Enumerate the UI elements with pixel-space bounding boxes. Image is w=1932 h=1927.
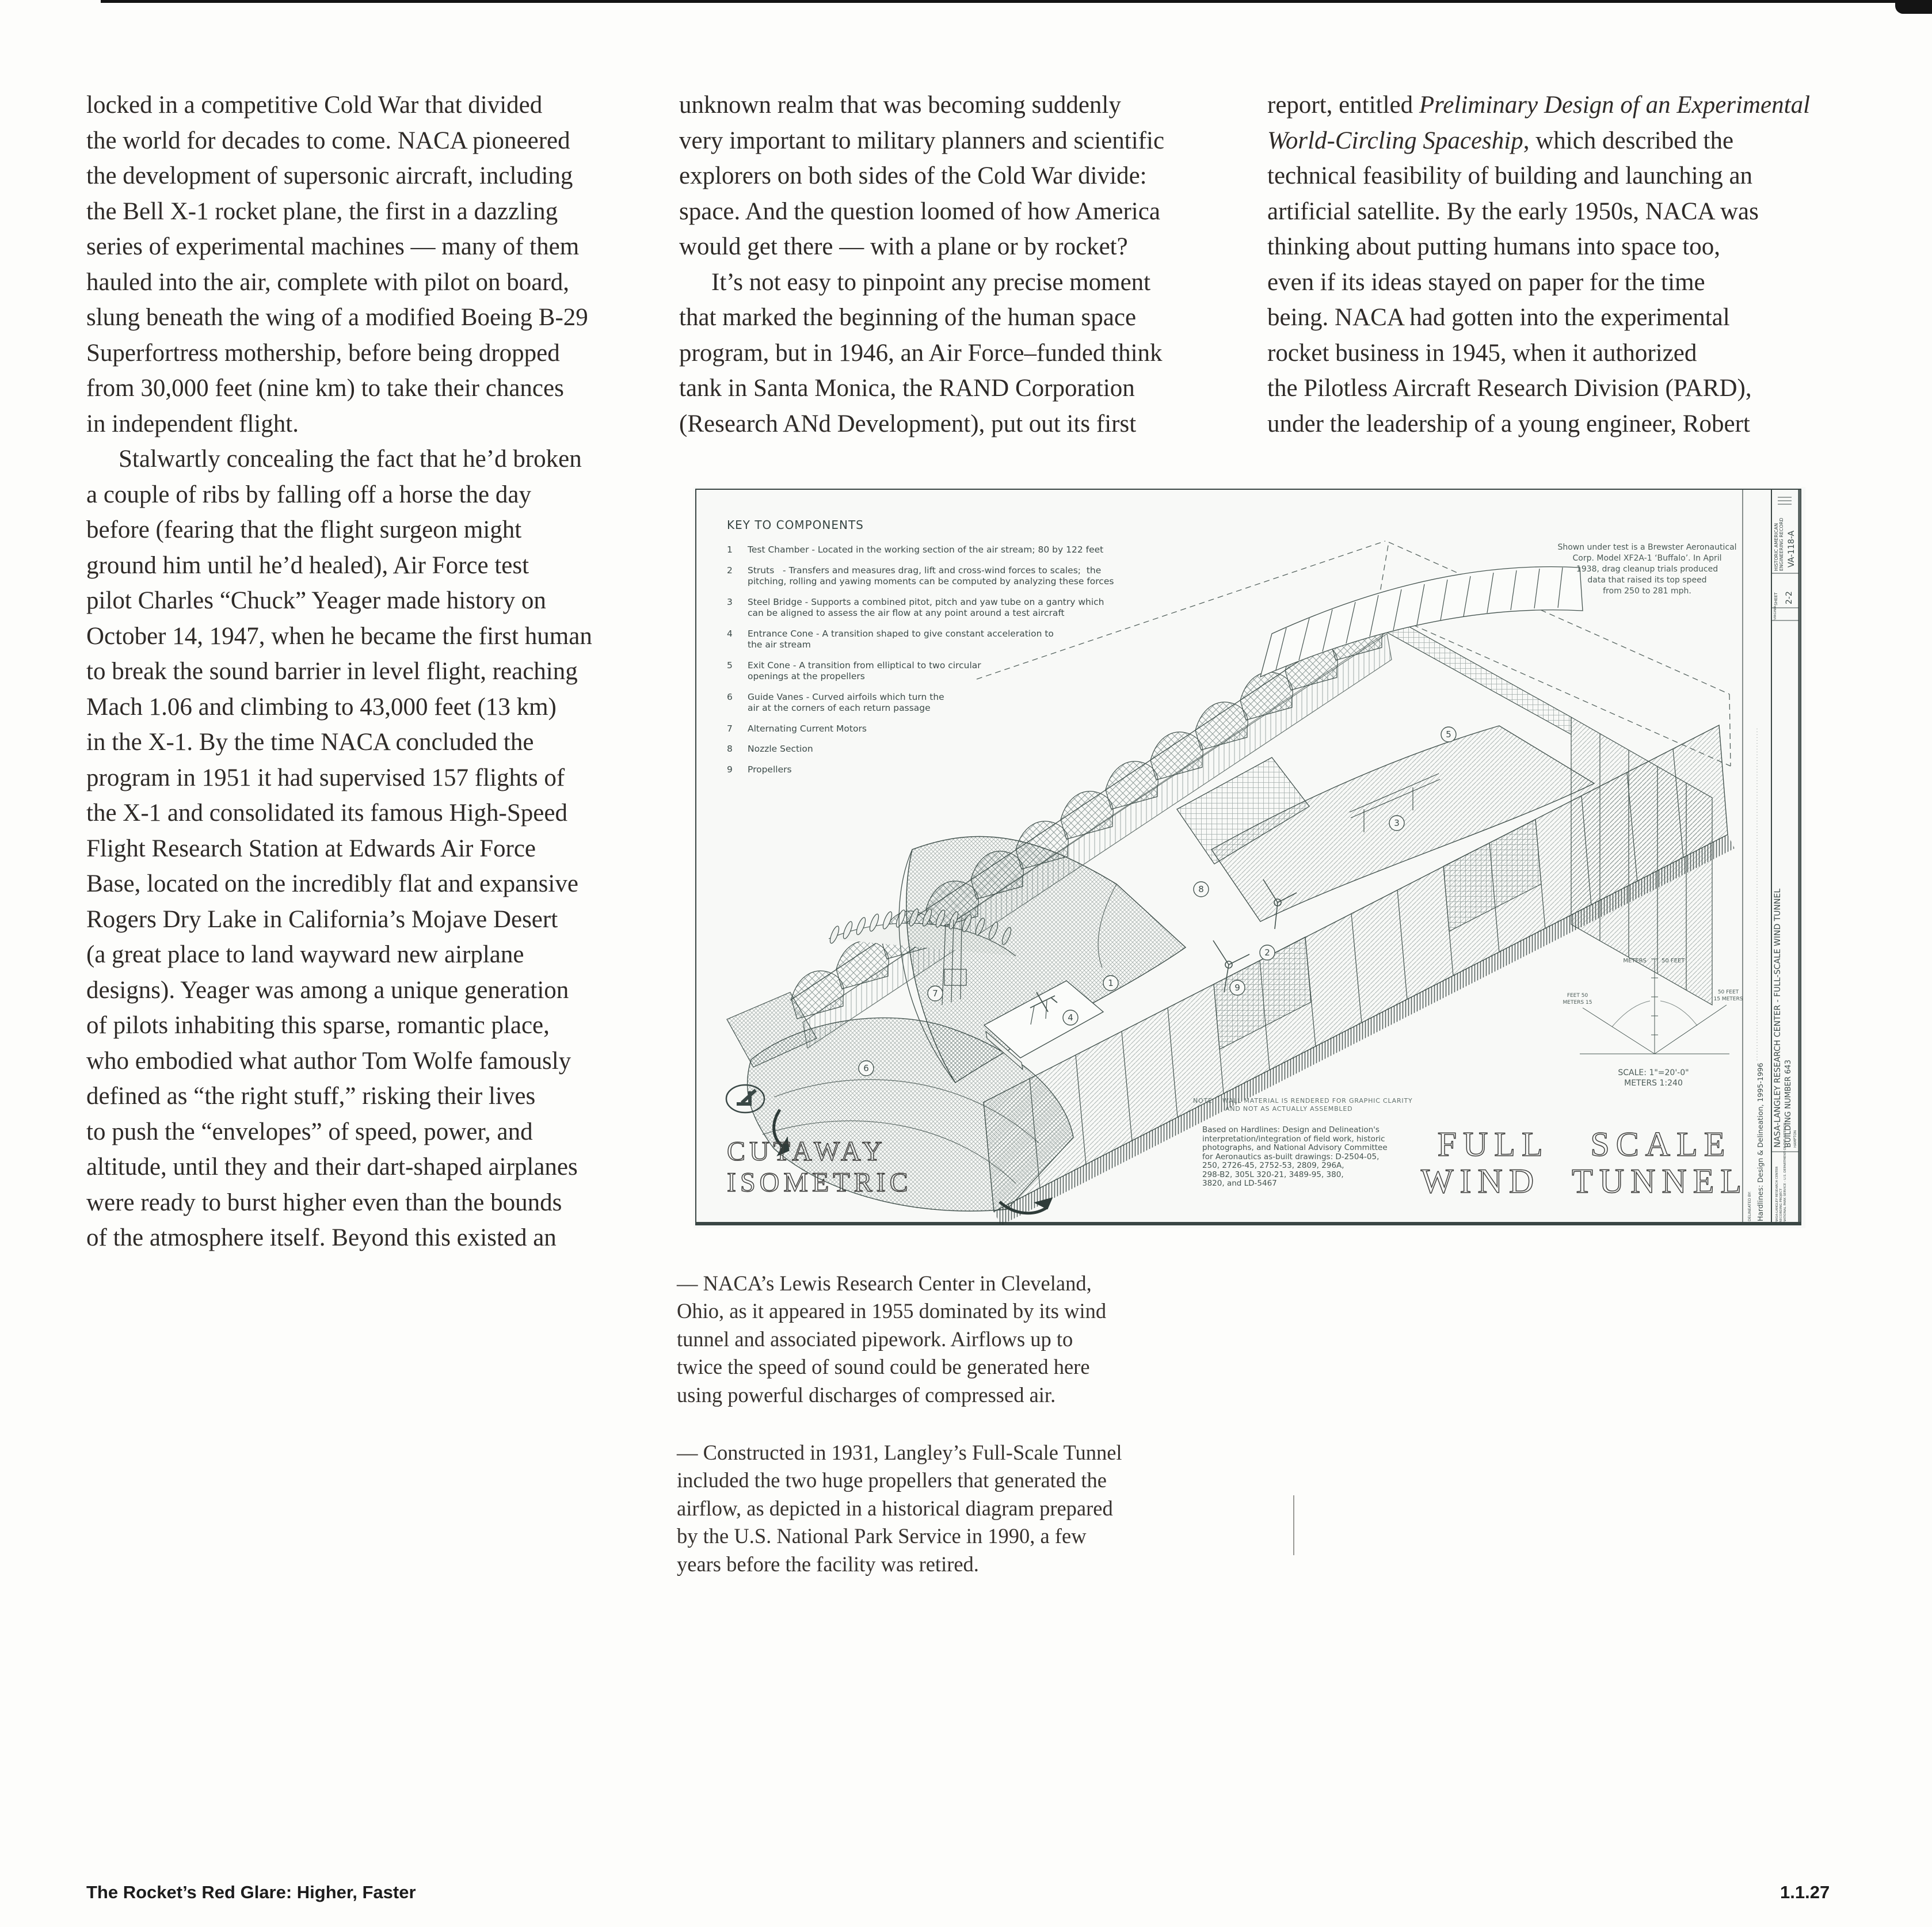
sheet-label: SHEET: [1774, 592, 1778, 605]
text-line: very important to military planners and …: [679, 123, 1255, 159]
scale-figure: METERS 50 FEET FEET 50 METERS 15 50 FEET…: [1563, 958, 1743, 1088]
text-line: rocket business in 1945, when it authori…: [1267, 336, 1889, 371]
text-line: Nozzle Section: [748, 744, 813, 755]
key-item: 4Entrance Cone - A transition shaped to …: [727, 629, 1187, 651]
text-line: in the X-1. By the time NACA concluded t…: [86, 725, 662, 760]
text-line: pitching, rolling and yawing moments can…: [748, 576, 1114, 588]
text-line: tunnel and associated pipework. Airflows…: [677, 1326, 1206, 1353]
text-line: 250, 2726-45, 2752-53, 2809, 296A,: [1202, 1161, 1409, 1171]
callout-2: 2: [1264, 947, 1270, 958]
text-line: using powerful discharges of compressed …: [677, 1381, 1206, 1409]
callout-8: 8: [1198, 884, 1204, 894]
text-line: to push the “envelopes” of speed, power,…: [86, 1114, 662, 1150]
running-footer-title: The Rocket’s Red Glare: Higher, Faster: [86, 1882, 416, 1903]
text-line: It’s not easy to pinpoint any precise mo…: [679, 265, 1255, 300]
text-line: photographs, and National Advisory Commi…: [1202, 1144, 1409, 1153]
scale-label-left-meters: METERS 15: [1563, 1000, 1592, 1006]
text-line: AND NOT AS ACTUALLY ASSEMBLED: [1225, 1105, 1413, 1113]
key-item-text: Test Chamber - Located in the working se…: [748, 544, 1103, 556]
text-line: of pilots inhabiting this sparse, romant…: [86, 1008, 662, 1044]
text-line: NOTE WALL MATERIAL IS RENDERED FOR GRAPH…: [1193, 1097, 1413, 1105]
text-line: air at the corners of each return passag…: [748, 703, 944, 714]
text-line: Base, located on the incredibly flat and…: [86, 866, 662, 902]
text-line: Rogers Dry Lake in California’s Mojave D…: [86, 902, 662, 938]
key-item: 7Alternating Current Motors: [727, 723, 1187, 735]
text-line: even if its ideas stayed on paper for th…: [1267, 265, 1889, 300]
key-item-text: Exit Cone - A transition from elliptical…: [748, 660, 981, 683]
text-line: the Pilotless Aircraft Research Division…: [1267, 371, 1889, 406]
scale-label-right-meters: 15 METERS: [1714, 996, 1743, 1002]
sheet-number: 2-2: [1785, 591, 1794, 604]
wall-material-note: NOTE WALL MATERIAL IS RENDERED FOR GRAPH…: [1193, 1097, 1413, 1113]
text-line: from 30,000 feet (nine km) to take their…: [86, 371, 662, 406]
key-item-text: Guide Vanes - Curved airfoils which turn…: [748, 692, 944, 714]
text-line: Stalwartly concealing the fact that he’d…: [86, 441, 662, 477]
key-title: KEY TO COMPONENTS: [727, 518, 1187, 532]
text-line: space. And the question loomed of how Am…: [679, 194, 1255, 230]
state-label: VIRGINIA: [1774, 605, 1777, 620]
scale-label-meters: METERS: [1623, 958, 1647, 964]
text-line: the air stream: [748, 639, 1054, 651]
text-line: Entrance Cone - A transition shaped to g…: [748, 629, 1054, 640]
text-line: Guide Vanes - Curved airfoils which turn…: [748, 692, 944, 703]
text-line: locked in a competitive Cold War that di…: [86, 87, 662, 123]
text-line: for Aeronautics as-built drawings: D-250…: [1202, 1153, 1409, 1162]
text-line: ground him until he’d healed), Air Force…: [86, 548, 662, 584]
text-line: slung beneath the wing of a modified Boe…: [86, 300, 662, 336]
delineator-name: Hardlines: Design & Delineation, 1995-19…: [1756, 1062, 1765, 1221]
key-item-text: Struts - Transfers and measures drag, li…: [748, 565, 1114, 588]
credit-line3: NATIONAL PARK SERVICE - U.S. DEPARTMENT …: [1784, 1122, 1787, 1223]
text-line: openings at the propellers: [748, 671, 981, 683]
caption-lewis-research-center: — NACA’s Lewis Research Center in Clevel…: [677, 1270, 1206, 1409]
text-line: to break the sound barrier in level flig…: [86, 654, 662, 690]
text-line: — Constructed in 1931, Langley’s Full-Sc…: [677, 1439, 1206, 1467]
text-line: years before the facility was retired.: [677, 1551, 1206, 1578]
titleblock-main-title: NASA-LANGLEY RESEARCH CENTER - FULL-SCAL…: [1773, 889, 1782, 1148]
text-line: the development of supersonic aircraft, …: [86, 158, 662, 194]
text-line: series of experimental machines — many o…: [86, 229, 662, 265]
text-column-middle: unknown realm that was becoming suddenly…: [679, 87, 1255, 441]
text-line: 1938, drag cleanup trials produced: [1556, 564, 1739, 575]
text-line: Superfortress mothership, before being d…: [86, 336, 662, 371]
key-item: 2Struts - Transfers and measures drag, l…: [727, 565, 1187, 588]
callout-6: 6: [863, 1063, 869, 1073]
key-item-list: 1Test Chamber - Located in the working s…: [727, 544, 1187, 775]
text-line: a couple of ribs by falling off a horse …: [86, 477, 662, 513]
text-column-left: locked in a competitive Cold War that di…: [86, 87, 662, 1256]
key-item-number: 2: [727, 565, 748, 588]
main-title-line1: FULL SCALE: [1438, 1125, 1732, 1163]
text-line: twice the speed of sound could be genera…: [677, 1353, 1206, 1381]
scale-caption-line2: METERS 1:240: [1624, 1079, 1683, 1088]
key-item-number: 3: [727, 597, 748, 619]
text-line: under the leadership of a young engineer…: [1267, 406, 1889, 442]
cutaway-title-line2: ISOMETRIC: [727, 1167, 912, 1198]
text-line: (a great place to land wayward new airpl…: [86, 937, 662, 973]
text-line: technical feasibility of building and la…: [1267, 158, 1889, 194]
text-line: 298-B2, 305L 320-21, 3489-95, 380,: [1202, 1171, 1409, 1180]
text-line: Ohio, as it appeared in 1955 dominated b…: [677, 1297, 1206, 1325]
haer-record-id: VA-118-A: [1787, 531, 1796, 568]
title-block: HISTORIC AMERICAN ENGINEERING RECORD VA-…: [1743, 489, 1799, 1225]
key-item-number: 4: [727, 629, 748, 651]
key-to-components: KEY TO COMPONENTS 1Test Chamber - Locate…: [727, 518, 1187, 784]
key-item-number: 9: [727, 764, 748, 776]
key-item: 6Guide Vanes - Curved airfoils which tur…: [727, 692, 1187, 714]
delineated-by-label: DELINEATED BY:: [1747, 1191, 1752, 1221]
text-line: interpretation/integration of field work…: [1202, 1135, 1409, 1144]
text-line: pilot Charles “Chuck” Yeager made histor…: [86, 583, 662, 619]
key-item-number: 7: [727, 723, 748, 735]
key-item-number: 6: [727, 692, 748, 714]
text-line: the Bell X-1 rocket plane, the first in …: [86, 194, 662, 230]
text-line: from 250 to 281 mph.: [1556, 586, 1739, 597]
key-item: 8Nozzle Section: [727, 744, 1187, 755]
key-item-text: Propellers: [748, 764, 792, 776]
credit-line1: NASA-LANGLEY RESEARCH CENTER: [1775, 1166, 1779, 1223]
text-line: before (fearing that the flight surgeon …: [86, 512, 662, 548]
text-line: in independent flight.: [86, 406, 662, 442]
text-line: October 14, 1947, when he became the fir…: [86, 619, 662, 654]
text-line: that marked the beginning of the human s…: [679, 300, 1255, 336]
callout-5: 5: [1446, 729, 1451, 740]
callout-1: 1: [1108, 978, 1114, 988]
key-item-text: Entrance Cone - A transition shaped to g…: [748, 629, 1054, 651]
text-line: airflow, as depicted in a historical dia…: [677, 1495, 1206, 1522]
scan-artifact-top-line: [101, 0, 1932, 3]
text-line: unknown realm that was becoming suddenly: [679, 87, 1255, 123]
key-item: 9Propellers: [727, 764, 1187, 776]
text-line: explorers on both sides of the Cold War …: [679, 158, 1255, 194]
key-item-number: 1: [727, 544, 748, 556]
text-line: would get there — with a plane or by roc…: [679, 229, 1255, 265]
page-number: 1.1.27: [1780, 1882, 1830, 1903]
haer-line2: ENGINEERING RECORD: [1779, 517, 1784, 571]
text-line: by the U.S. National Park Service in 199…: [677, 1522, 1206, 1550]
scan-artifact-crease: [1293, 1495, 1294, 1555]
key-item-text: Nozzle Section: [748, 744, 813, 755]
text-line: of the atmosphere itself. Beyond this ex…: [86, 1220, 662, 1256]
text-line: artificial satellite. By the early 1950s…: [1267, 194, 1889, 230]
haer-line1: HISTORIC AMERICAN: [1774, 523, 1779, 571]
text-line: program, but in 1946, an Air Force–funde…: [679, 336, 1255, 371]
cutaway-title-line1: CUTAWAY: [727, 1136, 886, 1167]
source-drawings-note: Based on Hardlines: Design and Delineati…: [1202, 1126, 1409, 1189]
text-line: thinking about putting humans into space…: [1267, 229, 1889, 265]
text-line: who embodied what author Tom Wolfe famou…: [86, 1044, 662, 1079]
callout-3: 3: [1394, 818, 1400, 828]
key-item: 1Test Chamber - Located in the working s…: [727, 544, 1187, 556]
text-line: Flight Research Station at Edwards Air F…: [86, 831, 662, 867]
text-line: (Research ANd Development), put out its …: [679, 406, 1255, 442]
key-item: 3Steel Bridge - Supports a combined pito…: [727, 597, 1187, 619]
text-line: defined as “the right stuff,” risking th…: [86, 1079, 662, 1114]
key-item-number: 5: [727, 660, 748, 683]
text-line: data that raised its top speed: [1556, 575, 1739, 586]
text-line: altitude, until they and their dart-shap…: [86, 1149, 662, 1185]
text-column-right: report, entitled Preliminary Design of a…: [1267, 87, 1889, 441]
text-line: Shown under test is a Brewster Aeronauti…: [1556, 542, 1739, 553]
text-line: program in 1951 it had supervised 157 fl…: [86, 760, 662, 796]
text-line: Exit Cone - A transition from elliptical…: [748, 660, 981, 672]
callout-9: 9: [1234, 982, 1240, 993]
text-line: Test Chamber - Located in the working se…: [748, 544, 1103, 556]
key-item-text: Steel Bridge - Supports a combined pitot…: [748, 597, 1104, 619]
credit-line2: RECORDING PROJECT: [1779, 1188, 1783, 1223]
text-line: were ready to burst higher even than the…: [86, 1185, 662, 1221]
text-line: World-Circling Spaceship, which describe…: [1267, 123, 1889, 159]
text-line: Steel Bridge - Supports a combined pitot…: [748, 597, 1104, 608]
text-line: report, entitled Preliminary Design of a…: [1267, 87, 1889, 123]
text-line: — NACA’s Lewis Research Center in Clevel…: [677, 1270, 1206, 1297]
text-line: being. NACA had gotten into the experime…: [1267, 300, 1889, 336]
text-line: the world for decades to come. NACA pion…: [86, 123, 662, 159]
scale-caption-line1: SCALE: 1"=20'-0": [1618, 1068, 1689, 1077]
scan-artifact-corner-blob: [1895, 0, 1932, 14]
text-line: designs). Yeager was among a unique gene…: [86, 973, 662, 1008]
test-aircraft-annotation: Shown under test is a Brewster Aeronauti…: [1556, 542, 1739, 597]
titleblock-city: HAMPTON: [1793, 1130, 1797, 1148]
key-item: 5Exit Cone - A transition from elliptica…: [727, 660, 1187, 683]
scale-label-left-feet: FEET 50: [1567, 993, 1588, 999]
wind-tunnel-drawing-sheet: 1 2 3 4 5 6 7 8 9 METERS 50 FEET: [693, 487, 1805, 1228]
text-line: Mach 1.06 and climbing to 43,000 feet (1…: [86, 690, 662, 725]
callout-7: 7: [932, 988, 938, 999]
text-line: included the two huge propellers that ge…: [677, 1467, 1206, 1494]
text-line: the X-1 and consolidated its famous High…: [86, 795, 662, 831]
main-title-line2: WIND TUNNEL: [1421, 1162, 1748, 1200]
text-line: tank in Santa Monica, the RAND Corporati…: [679, 371, 1255, 406]
key-item-text: Alternating Current Motors: [748, 723, 867, 735]
text-line: Based on Hardlines: Design and Delineati…: [1202, 1126, 1409, 1135]
text-line: 3820, and LD-5467: [1202, 1179, 1409, 1189]
text-line: can be aligned to assess the air flow at…: [748, 608, 1104, 619]
key-item-number: 8: [727, 744, 748, 755]
scale-label-right-feet: 50 FEET: [1718, 989, 1739, 995]
caption-langley-full-scale-tunnel: — Constructed in 1931, Langley’s Full-Sc…: [677, 1439, 1206, 1578]
callout-4: 4: [1068, 1012, 1073, 1023]
text-line: Struts - Transfers and measures drag, li…: [748, 565, 1114, 577]
text-line: Corp. Model XF2A-1 ‘Buffalo’. In April: [1556, 553, 1739, 564]
text-line: Propellers: [748, 764, 792, 776]
text-line: hauled into the air, complete with pilot…: [86, 265, 662, 300]
text-line: Alternating Current Motors: [748, 723, 867, 735]
scale-label-feet-top: 50 FEET: [1662, 958, 1685, 964]
